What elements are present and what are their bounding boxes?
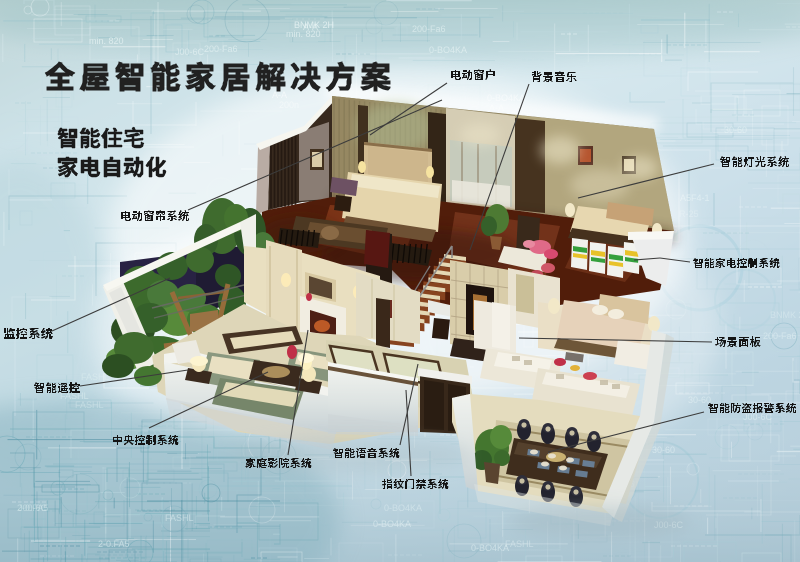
svg-text:30-60: 30-60 bbox=[652, 445, 675, 455]
svg-text:A-A: A-A bbox=[303, 22, 318, 32]
svg-text:0-BO4KA: 0-BO4KA bbox=[373, 519, 411, 529]
svg-text:A5F4-1: A5F4-1 bbox=[680, 193, 710, 203]
svg-text:min. 820: min. 820 bbox=[89, 36, 124, 46]
svg-text:FASHL: FASHL bbox=[505, 539, 534, 549]
svg-text:200-Fa6: 200-Fa6 bbox=[204, 44, 238, 54]
svg-text:2-0.FA5: 2-0.FA5 bbox=[17, 503, 49, 513]
svg-text:0-BO4KA: 0-BO4KA bbox=[384, 503, 422, 513]
svg-text:200-Fa6: 200-Fa6 bbox=[763, 331, 797, 341]
svg-text:BNMK 2H: BNMK 2H bbox=[770, 310, 800, 320]
svg-text:J00-6C: J00-6C bbox=[175, 47, 205, 57]
svg-text:J00-6C: J00-6C bbox=[743, 412, 773, 422]
svg-text:200-Fa6: 200-Fa6 bbox=[412, 24, 446, 34]
svg-text:0-BO4KA: 0-BO4KA bbox=[429, 45, 467, 55]
svg-text:2-0.FA5: 2-0.FA5 bbox=[98, 539, 130, 549]
svg-text:FASHL: FASHL bbox=[165, 513, 194, 523]
svg-text:30-60: 30-60 bbox=[724, 125, 747, 135]
svg-text:0-BO4KA: 0-BO4KA bbox=[471, 543, 509, 553]
svg-text:FASHL: FASHL bbox=[75, 400, 104, 410]
